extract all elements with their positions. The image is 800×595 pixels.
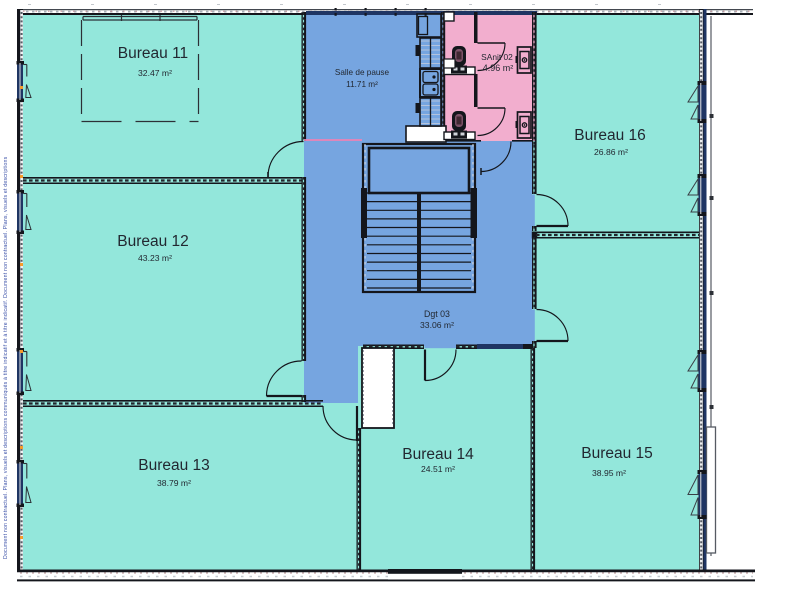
svg-text:38.79 m²: 38.79 m² [157,478,191,488]
svg-text:Bureau 15: Bureau 15 [581,445,653,462]
svg-text:11.71 m²: 11.71 m² [346,80,378,89]
svg-text:SAnit 02: SAnit 02 [481,52,513,62]
svg-text:Document non contractuel. Plan: Document non contractuel. Plans, visuels… [3,156,9,559]
svg-text:Dgt 03: Dgt 03 [424,309,450,319]
svg-text:Salle de pause: Salle de pause [335,68,390,77]
svg-text:Bureau 16: Bureau 16 [574,127,646,144]
svg-text:Bureau 12: Bureau 12 [117,233,189,250]
svg-text:32.47 m²: 32.47 m² [138,68,172,78]
svg-text:43.23 m²: 43.23 m² [138,253,172,263]
svg-text:Bureau 13: Bureau 13 [138,457,210,474]
svg-text:4.96 m²: 4.96 m² [483,63,514,73]
svg-text:38.95 m²: 38.95 m² [592,468,626,478]
svg-text:Bureau 14: Bureau 14 [402,446,474,463]
svg-text:24.51 m²: 24.51 m² [421,464,455,474]
svg-text:Bureau 11: Bureau 11 [118,45,188,62]
svg-text:26.86 m²: 26.86 m² [594,147,628,157]
svg-text:33.06 m²: 33.06 m² [420,320,454,330]
